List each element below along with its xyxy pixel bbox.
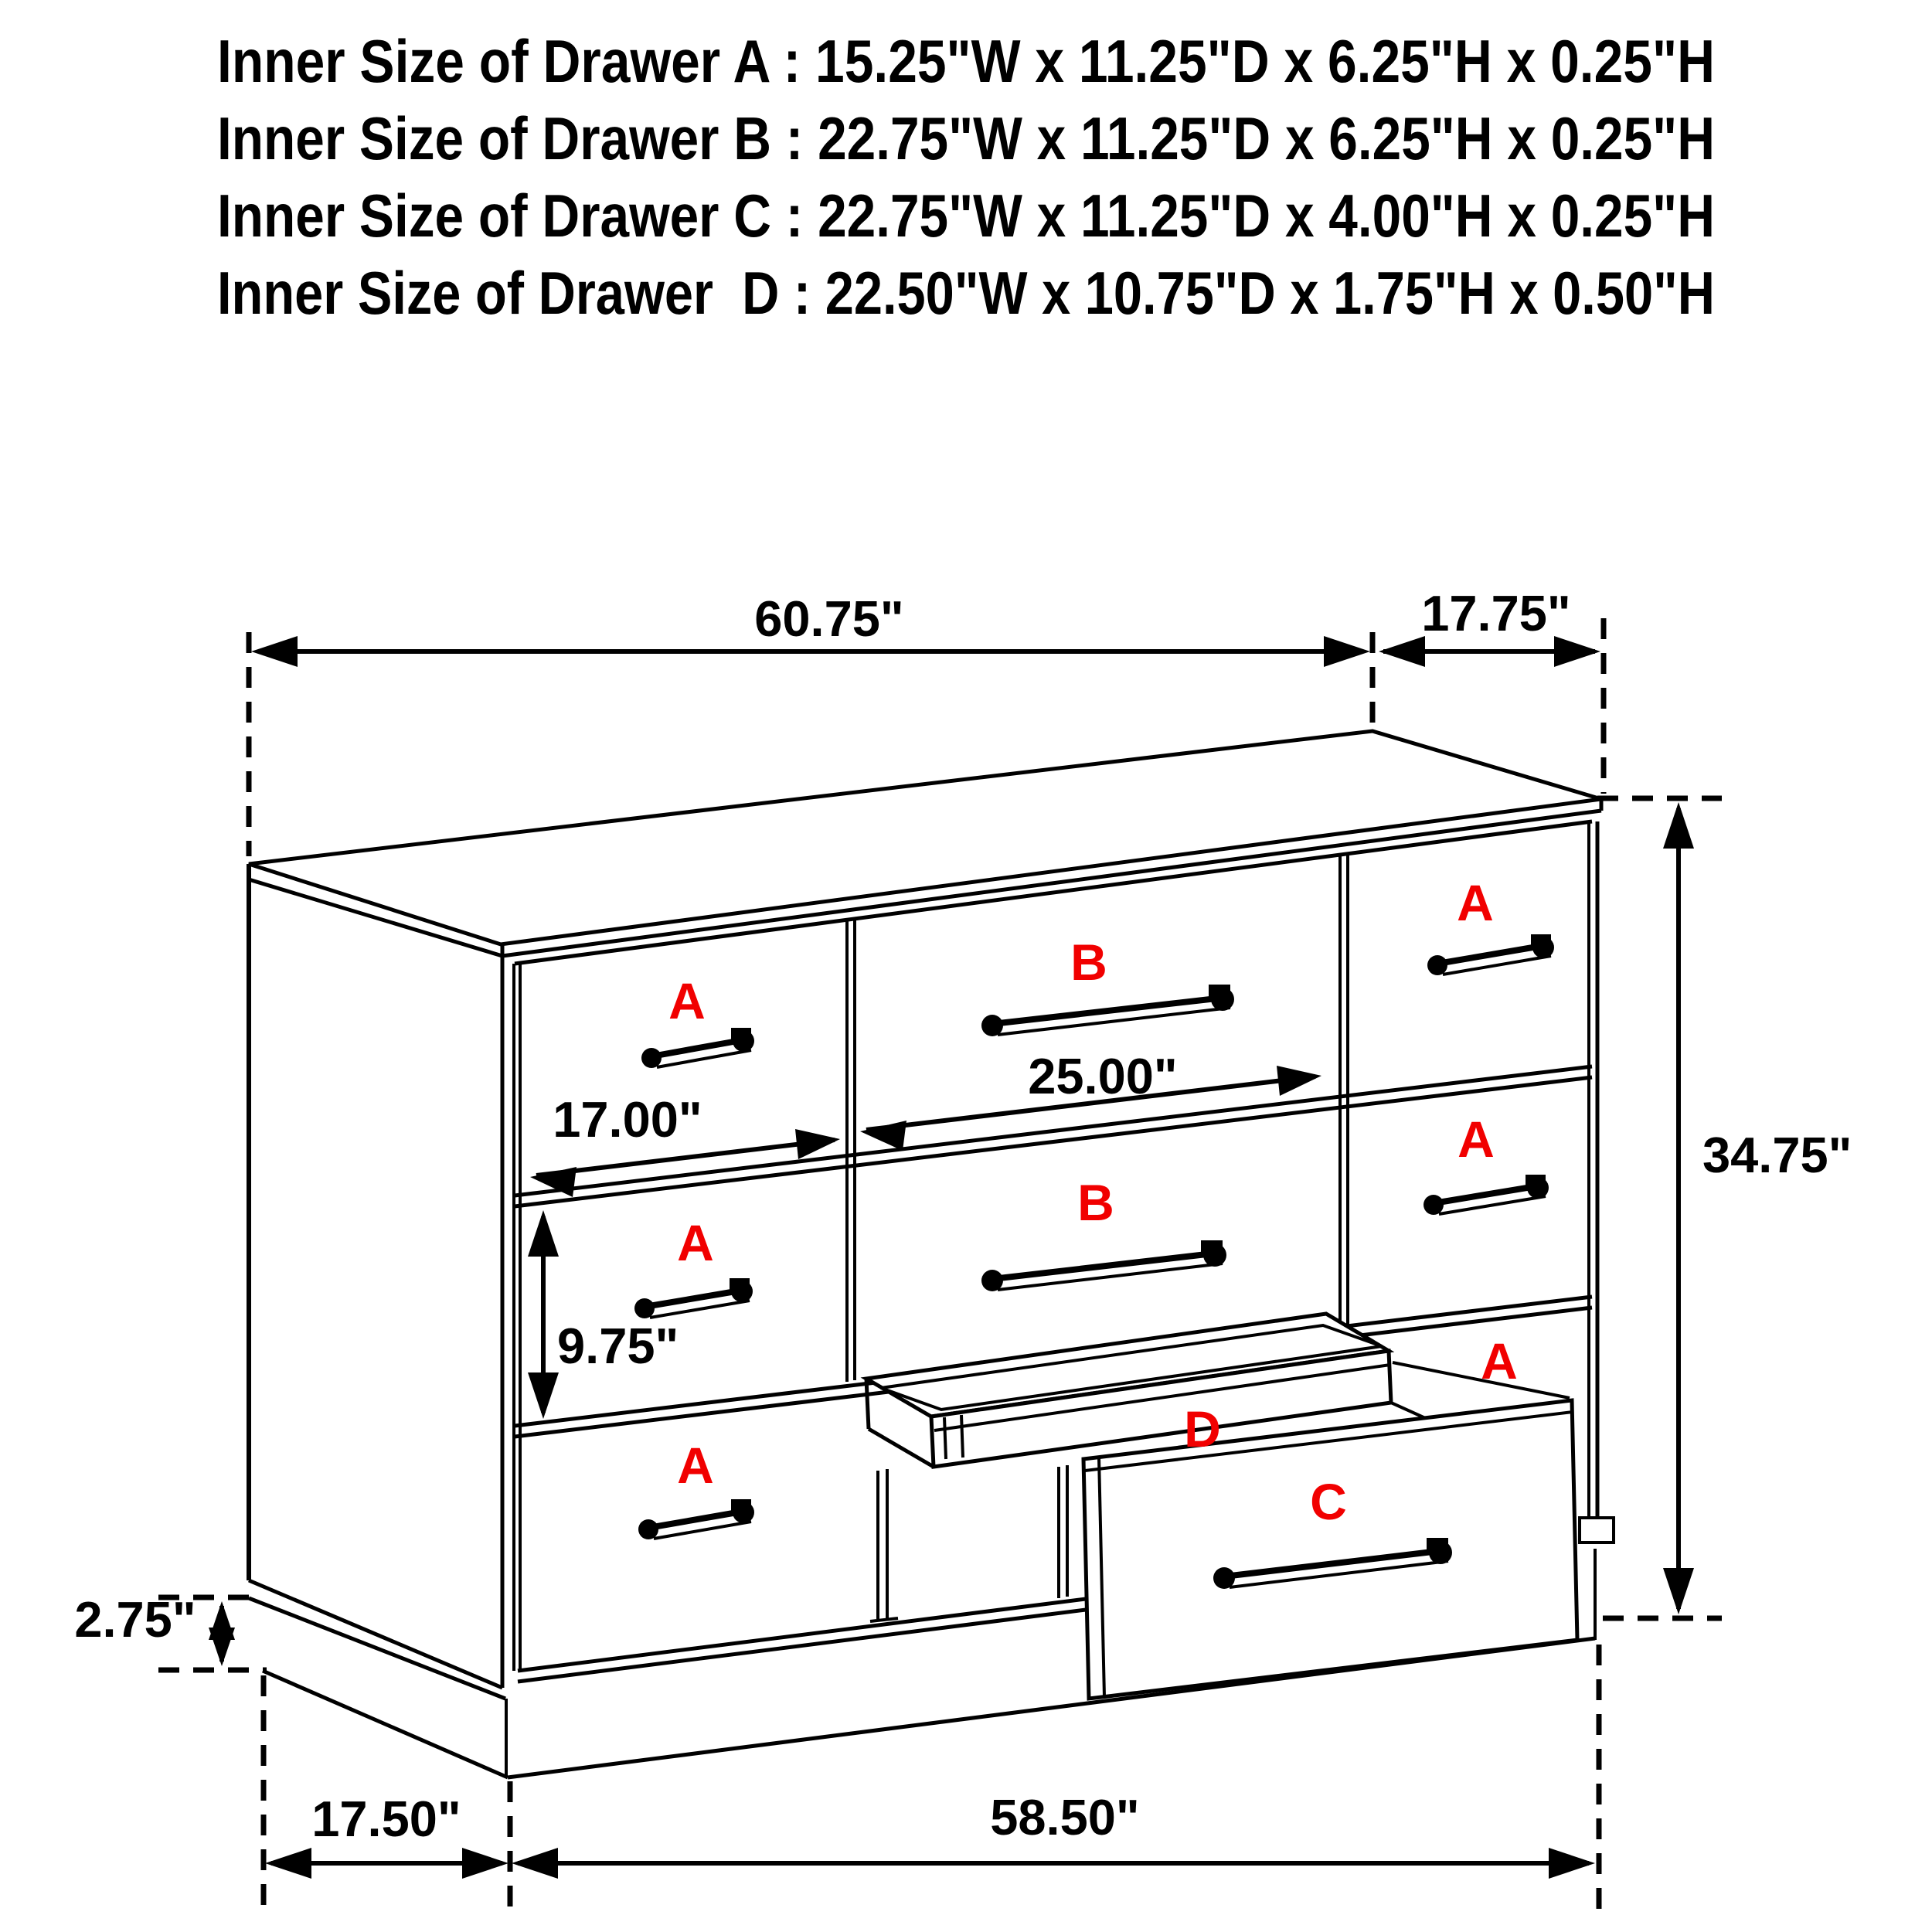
svg-text:25.00": 25.00" [1028,1048,1177,1104]
svg-text:C: C [1310,1473,1347,1530]
svg-text:Inner Size of Drawer C : 22.75: Inner Size of Drawer C : 22.75"W x 11.25… [217,182,1715,250]
svg-text:A: A [668,972,706,1029]
svg-text:A: A [1481,1332,1518,1389]
svg-text:2.75": 2.75" [74,1591,196,1648]
svg-text:Inner Size of Drawer D : 22.5: Inner Size of Drawer D : 22.50"W x 10.75… [217,259,1715,327]
svg-text:A: A [677,1214,714,1271]
svg-text:9.75": 9.75" [557,1318,679,1374]
svg-text:17.00": 17.00" [553,1091,702,1148]
svg-text:Inner Size of Drawer B : 22.75: Inner Size of Drawer B : 22.75"W x 11.25… [217,104,1715,172]
svg-text:A: A [677,1437,714,1494]
svg-text:A: A [1457,874,1494,931]
svg-text:58.50": 58.50" [990,1789,1139,1845]
svg-text:D: D [1184,1400,1221,1458]
svg-text:A: A [1458,1111,1495,1168]
svg-text:B: B [1070,934,1107,991]
svg-text:60.75": 60.75" [754,590,903,647]
svg-text:17.50": 17.50" [311,1791,461,1847]
svg-text:B: B [1077,1174,1114,1231]
svg-text:34.75": 34.75" [1702,1127,1852,1183]
svg-text:17.75": 17.75" [1421,585,1570,641]
svg-text:Inner Size of Drawer A : 15.25: Inner Size of Drawer A : 15.25"W x 11.25… [217,27,1715,95]
